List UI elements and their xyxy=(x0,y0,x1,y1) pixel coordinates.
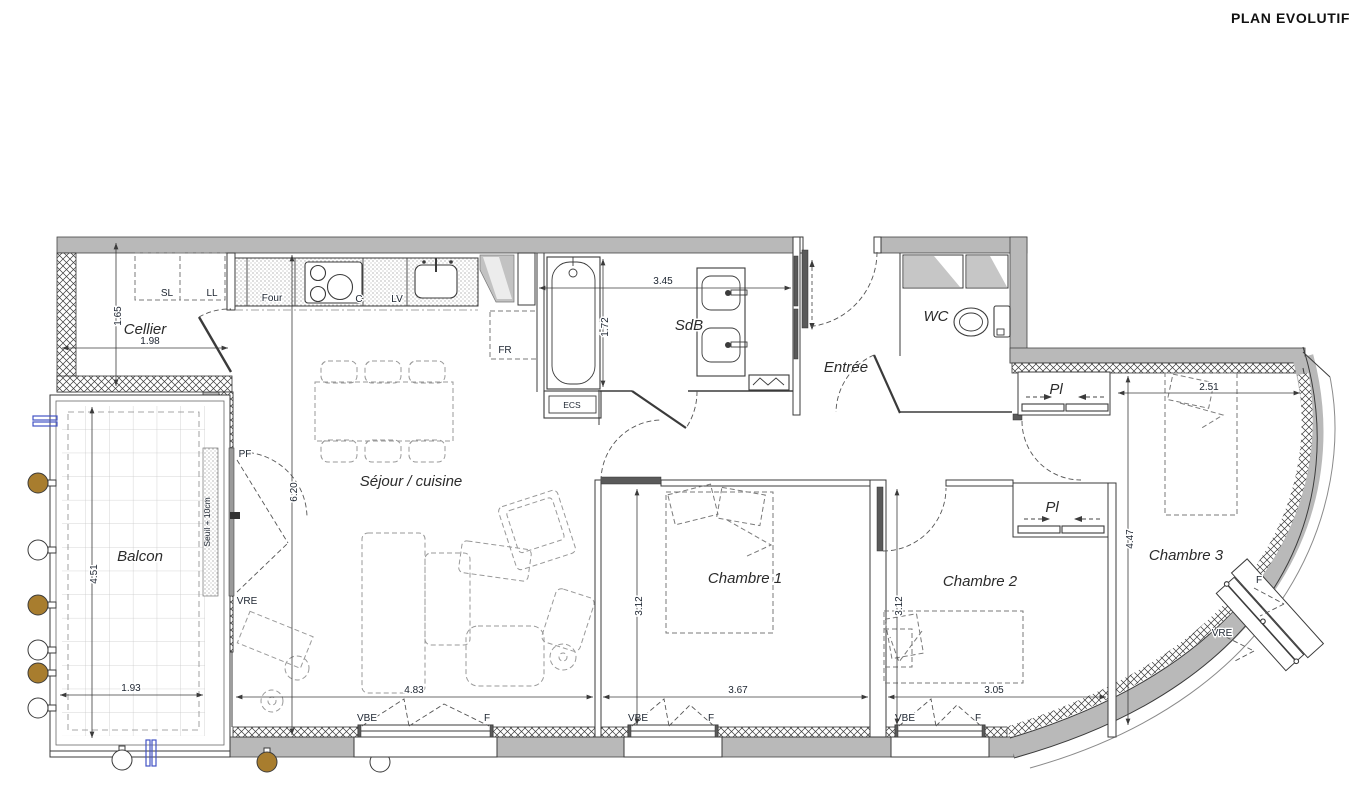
pl-top-label: Pl xyxy=(1049,381,1063,398)
pl-ch2-label: Pl xyxy=(1045,499,1059,516)
vre-label: VRE xyxy=(237,596,258,607)
dim-sejour-width: 4.83 xyxy=(236,685,593,697)
svg-text:2.51: 2.51 xyxy=(1199,382,1219,393)
svg-text:4.51: 4.51 xyxy=(89,564,100,584)
f-label: F xyxy=(708,713,714,724)
chambre2: Chambre 2 xyxy=(884,573,1023,683)
chambre1-label: Chambre 1 xyxy=(708,570,782,587)
sejour-label: Séjour / cuisine xyxy=(360,473,463,490)
svg-text:3.12: 3.12 xyxy=(894,596,905,616)
svg-text:4.47: 4.47 xyxy=(1125,529,1136,549)
floor-plan-canvas: Balcon Seuil + 10cm PF VRE SL LL Cellier xyxy=(0,0,1364,800)
svg-text:3.67: 3.67 xyxy=(728,685,748,696)
dim-sdb-height: 1.72 xyxy=(600,259,611,387)
wc-door-leaf xyxy=(874,355,900,413)
cooktop xyxy=(305,262,362,303)
desk-corner xyxy=(237,611,313,668)
bathtub xyxy=(547,257,600,389)
chambre3: Chambre 3 xyxy=(1149,373,1237,564)
sofa xyxy=(362,533,532,693)
sl-label: SL xyxy=(161,288,174,299)
toilet xyxy=(954,306,1010,337)
floor-plan-page: PLAN EVOLUTIF xyxy=(0,0,1364,800)
dining-table xyxy=(315,361,453,462)
dryer-box xyxy=(180,253,225,300)
entree-label: Entrée xyxy=(824,359,868,376)
sdb-door-leaf xyxy=(632,391,686,428)
bed-single xyxy=(884,611,1023,683)
exterior-walls xyxy=(57,237,1305,757)
dim-cellier-height: 1.65 xyxy=(113,243,124,386)
washer-box xyxy=(135,253,180,300)
wc-ducts xyxy=(903,255,1008,288)
window-handle xyxy=(230,512,240,519)
plant xyxy=(261,690,283,712)
glazing-bar xyxy=(229,448,234,596)
fridge-box xyxy=(490,311,537,359)
dim-ch1-height: 3.12 xyxy=(634,489,645,725)
entry: Entrée xyxy=(802,250,877,376)
ll-label: LL xyxy=(206,288,218,299)
svg-text:1.72: 1.72 xyxy=(600,317,611,337)
sdb-label: SdB xyxy=(675,317,703,334)
svg-text:1.93: 1.93 xyxy=(121,683,141,694)
dim-ch3-width: 2.51 xyxy=(1118,382,1300,393)
svg-text:3.45: 3.45 xyxy=(653,276,673,287)
dim-ch2-height: 3.12 xyxy=(894,489,905,725)
bed-single xyxy=(1165,373,1237,515)
vbe-label: VBE xyxy=(895,713,915,724)
f-label: F xyxy=(975,713,981,724)
svg-text:3.12: 3.12 xyxy=(634,596,645,616)
dim-cellier-width: 1.98 xyxy=(62,336,228,348)
dim-ch1-width: 3.67 xyxy=(603,685,868,697)
svg-text:6.20: 6.20 xyxy=(289,482,300,502)
chambre1: Chambre 1 xyxy=(666,484,782,633)
svg-text:3.05: 3.05 xyxy=(984,685,1004,696)
dim-ch2-width: 3.05 xyxy=(888,685,1106,697)
f-curve-label: F xyxy=(1256,575,1262,586)
pf-label: PF xyxy=(239,449,252,460)
ch2-door-leaf xyxy=(877,487,883,551)
bed-double xyxy=(666,492,773,633)
coffee-table xyxy=(466,626,544,686)
wc-label: WC xyxy=(924,308,949,325)
dim-sejour-height: 6.20 xyxy=(289,255,300,735)
vbe-label: VBE xyxy=(628,713,648,724)
svg-text:1.65: 1.65 xyxy=(113,306,124,326)
entry-door-leaf xyxy=(802,250,808,328)
svg-text:4.83: 4.83 xyxy=(404,685,424,696)
towel-radiator xyxy=(749,375,789,390)
cooktop-label: C xyxy=(355,294,362,305)
f-label: F xyxy=(484,713,490,724)
sejour-furniture: Séjour / cuisine xyxy=(237,361,595,712)
four-label: Four xyxy=(262,293,283,304)
chambre3-label: Chambre 3 xyxy=(1149,547,1224,564)
chambre2-label: Chambre 2 xyxy=(943,573,1018,590)
balcon-label: Balcon xyxy=(117,548,163,565)
sejour-west-window: Seuil + 10cm PF VRE xyxy=(202,448,307,607)
interior-partitions xyxy=(595,392,1116,737)
vre-curve-label: VRE xyxy=(1212,628,1233,639)
svg-text:1.98: 1.98 xyxy=(140,336,160,347)
sejour-window: VBE F xyxy=(354,699,497,757)
dim-ch3-height: 4.47 xyxy=(1125,376,1136,725)
desk-chair xyxy=(285,656,309,680)
bathroom: ECS SdB xyxy=(537,237,800,428)
ch1-window: VBE F xyxy=(624,699,722,757)
fr-label: FR xyxy=(498,345,511,356)
wc: WC xyxy=(836,253,1012,413)
lv-label: LV xyxy=(391,294,403,305)
closet-top: Pl xyxy=(1018,372,1110,415)
cellier: SL LL Cellier xyxy=(124,253,235,372)
side-chair xyxy=(540,587,595,653)
vbe-label: VBE xyxy=(357,713,377,724)
closet-ch2: Pl xyxy=(1013,483,1108,537)
ecs-label: ECS xyxy=(563,400,581,410)
ch2-window: VBE F xyxy=(891,699,989,757)
seuil-label: Seuil + 10cm xyxy=(202,497,212,546)
armchair xyxy=(497,489,576,571)
double-washbasin xyxy=(697,268,747,376)
kitchen: Four C LV FR xyxy=(235,253,537,359)
ch1-door-leaf xyxy=(601,477,661,484)
cellier-door-leaf xyxy=(199,317,231,372)
